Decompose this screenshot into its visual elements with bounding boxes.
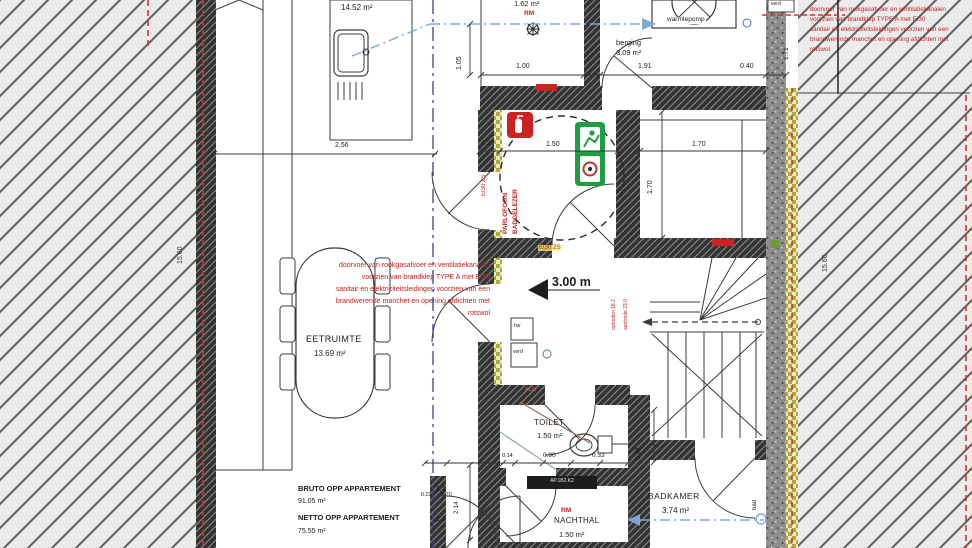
dim-0-90: 0.90 <box>543 453 556 460</box>
fire-note-right-line3: sanitair en elektriciteitsleidingen voor… <box>810 25 970 35</box>
verd-top-label: verd <box>771 2 781 7</box>
dim-0-14: 0.14 <box>502 454 513 460</box>
left-neighbour-hatch <box>0 0 196 548</box>
hw-label: hw <box>514 324 520 329</box>
netto-area: 75.55 m² <box>298 528 326 535</box>
fire-note-center-line1: doorvoer van rookgasafvoer en ventilatie… <box>258 260 490 272</box>
dim-15-60-right: 15.60 <box>822 228 829 272</box>
bruto-number: 1.1 <box>436 486 446 493</box>
badkamer-name-label: BADKAMER <box>648 492 700 501</box>
upper-landing <box>640 120 766 238</box>
dim-0-22: 0.22 <box>421 493 432 499</box>
ceiling-height-label: 3.00 m <box>552 276 591 289</box>
intercom-label-line1: PARLOFOON <box>503 140 510 234</box>
party-wall <box>196 0 216 548</box>
dim-2-56: 2.56 <box>335 142 349 149</box>
netto-number: 1.1 <box>436 516 446 523</box>
dim-0-33: 0.33 <box>592 453 605 460</box>
berging-name-label: berging <box>616 39 641 47</box>
stair-note-2-label: aantrede 23.0 <box>624 258 629 330</box>
dim-0-40: 0.40 <box>740 63 754 70</box>
ei30-zs-vertical-label: EI30 ZS <box>481 146 487 196</box>
fire-note-center-line4: brandwerende manchet en opening afdichte… <box>258 296 490 308</box>
right-neighbour-hatch <box>786 0 972 548</box>
eetruimte-name-label: EETRUIMTE <box>306 335 362 344</box>
exit-sign-icon <box>575 122 605 186</box>
smoke-detector-top-label: RM <box>524 11 534 18</box>
warmtepomp-label: warmtepomp <box>666 17 706 24</box>
stair-note-1-label: optreden 18.2 <box>612 258 617 330</box>
fire-extinguisher-icon <box>507 112 533 138</box>
dim-1-70-vertical: 1.70 <box>647 156 654 194</box>
dim-0-98-vertical: 0.98 <box>636 426 643 460</box>
kitchen-area-label: 14.52 m² <box>341 4 373 12</box>
ei30-zs-wall-label: EI30 ZS <box>538 245 562 251</box>
eetruimte-area-label: 13.69 m² <box>314 350 346 358</box>
verd-hall-label: verd <box>513 350 523 355</box>
heat-pump-icon <box>652 0 751 28</box>
dim-1-71-vertical: 1.71 <box>784 26 791 60</box>
berging-area-label: 3.09 m² <box>616 49 641 57</box>
bruto-label: BRUTO OPP APPARTEMENT <box>298 485 401 493</box>
dim-1-91: 1.91 <box>638 63 652 70</box>
small-room-area-label: 1.62 m² <box>514 0 539 8</box>
bruto-area: 91.05 m² <box>298 498 326 505</box>
fire-note-right-line4: brandwerende manchet en opening afdichte… <box>810 35 970 45</box>
fire-note-center: doorvoer van rookgasafvoer en ventilatie… <box>258 260 490 320</box>
fire-note-right-line1: doorvoer van rookgasafvoer en ventilatie… <box>810 5 970 15</box>
floor-plan-page: 14.52 m² 1.62 m² berging 3.09 m² warmtep… <box>0 0 972 548</box>
fire-note-center-line5: rotswol <box>258 308 490 320</box>
dim-1-50: 1.50 <box>546 141 560 148</box>
dim-15-60-left: 15.60 <box>177 220 184 264</box>
dim-0-70: 0.70 <box>441 493 452 499</box>
dim-2-14-vertical: 2.14 <box>454 478 461 514</box>
nachthal-area-label: 1.50 m² <box>559 531 584 539</box>
badkamer-area-label: 3.74 m² <box>662 507 689 515</box>
intercom-label-line2: BADGELEZER <box>513 140 520 234</box>
fire-note-center-line2: voorzien van brandklep TYPE A met EI30 <box>258 272 490 284</box>
dim-1-70-horizontal: 1.70 <box>692 141 706 148</box>
toilet-area-label: 1.50 m² <box>537 432 562 440</box>
door-tag-label: AP.1B2.K2 <box>529 479 595 484</box>
smoke-detector-nachthal-label: RM <box>561 508 571 515</box>
dim-1-05-vertical: 1.05 <box>456 30 463 70</box>
netto-label: NETTO OPP APPARTEMENT <box>298 514 399 522</box>
fire-note-right-line5: rotswol <box>810 45 970 55</box>
bad-label: bad <box>752 488 758 510</box>
staircase <box>642 258 766 438</box>
fire-note-right-line2: voorzien van brandklep TYPE A met EI30 <box>810 15 970 25</box>
dim-1-00: 1.00 <box>516 63 530 70</box>
nachthal-name-label: NACHTHAL <box>554 517 600 525</box>
alg-label: ALG <box>525 388 536 394</box>
fire-note-right: doorvoer van rookgasafvoer en ventilatie… <box>810 5 970 55</box>
toilet-name-label: TOILET <box>534 419 564 427</box>
fire-note-center-line3: sanitair en elektriciteitsleidingen voor… <box>258 284 490 296</box>
